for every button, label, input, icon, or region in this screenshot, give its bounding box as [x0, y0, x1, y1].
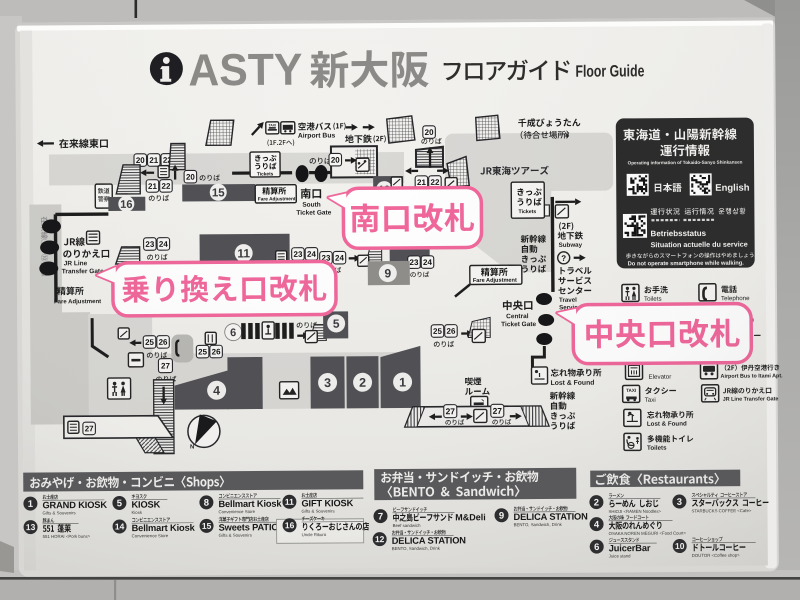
svg-text:6: 6 [594, 542, 599, 553]
svg-text:Beef sandwich: Beef sandwich [393, 523, 422, 528]
svg-text:27: 27 [446, 406, 456, 416]
svg-text:ASTY: ASTY [188, 44, 302, 96]
svg-text:Toilets: Toilets [644, 296, 662, 303]
svg-text:N: N [190, 444, 194, 450]
svg-text:20: 20 [425, 128, 435, 137]
svg-text:27: 27 [85, 424, 95, 433]
svg-text:Fare Adjustment: Fare Adjustment [54, 299, 101, 305]
svg-text:South: South [302, 202, 320, 209]
svg-text:DELICA STATION: DELICA STATION [392, 535, 467, 546]
svg-text:6: 6 [230, 327, 236, 339]
svg-text:Ticket Gate: Ticket Gate [296, 209, 331, 216]
svg-text:Do not operate smartphone whil: Do not operate smartphone while walking. [628, 261, 745, 268]
svg-text:8: 8 [204, 498, 209, 509]
svg-text:15: 15 [202, 521, 212, 531]
svg-text:Sweets PATIO: Sweets PATIO [219, 522, 279, 532]
svg-text:14: 14 [115, 521, 125, 531]
svg-text:26: 26 [446, 327, 456, 336]
svg-text:16: 16 [285, 520, 295, 530]
svg-text:25: 25 [433, 327, 443, 336]
svg-text:27: 27 [493, 406, 503, 416]
svg-text:1: 1 [28, 499, 34, 510]
svg-text:Travel: Travel [559, 297, 577, 304]
svg-text:Bellmart Kiosk: Bellmart Kiosk [132, 523, 196, 533]
svg-text:3: 3 [677, 497, 682, 508]
svg-text:?: ? [561, 254, 566, 263]
svg-text:27: 27 [161, 361, 171, 370]
svg-text:Gifts & Souvenirs: Gifts & Souvenirs [301, 508, 334, 513]
svg-text:Fare Adjustment: Fare Adjustment [473, 278, 517, 284]
svg-text:4: 4 [213, 384, 220, 398]
svg-text:22: 22 [161, 182, 171, 191]
svg-text:Elevator: Elevator [649, 374, 672, 381]
svg-text:9: 9 [384, 266, 391, 280]
svg-text:Airport Bus to Itami Apt.: Airport Bus to Itami Apt. [721, 373, 784, 379]
svg-text:20: 20 [331, 156, 341, 165]
svg-text:21: 21 [417, 178, 427, 187]
svg-text:Operating information of Tokai: Operating information of Tokaido-Sanyo S… [628, 160, 743, 166]
svg-text:23: 23 [410, 258, 420, 267]
svg-text:Gifts & Souvenirs: Gifts & Souvenirs [42, 510, 75, 515]
svg-text:GIFT KIOSK: GIFT KIOSK [301, 498, 353, 508]
svg-text:2: 2 [359, 376, 366, 390]
svg-text:24: 24 [335, 254, 345, 263]
svg-text:12: 12 [375, 534, 385, 544]
svg-text:25: 25 [198, 347, 208, 356]
svg-text:Lost & Found: Lost & Found [551, 380, 595, 387]
svg-text:25: 25 [145, 338, 155, 347]
svg-text:11: 11 [237, 246, 250, 260]
svg-text:Taxi: Taxi [645, 397, 656, 404]
svg-text:TAXI: TAXI [626, 388, 636, 393]
svg-text:11: 11 [285, 497, 294, 507]
svg-text:DOUTOR <Coffee shop>: DOUTOR <Coffee shop> [692, 553, 740, 558]
svg-text:Subway: Subway [559, 242, 583, 249]
svg-text:21: 21 [149, 156, 159, 165]
svg-text:Tickets: Tickets [518, 209, 536, 215]
svg-text:20: 20 [186, 173, 196, 182]
svg-text:26: 26 [212, 347, 222, 356]
svg-text:24: 24 [159, 240, 169, 249]
svg-text:23: 23 [293, 250, 303, 259]
svg-text:English: English [715, 183, 750, 194]
svg-text:23: 23 [145, 240, 155, 249]
svg-text:Convenience Store: Convenience Store [132, 533, 169, 538]
svg-text:DELICA STATION: DELICA STATION [513, 511, 588, 522]
svg-text:1: 1 [399, 375, 406, 389]
svg-text:GRAND KIOSK: GRAND KIOSK [42, 500, 107, 510]
svg-text:5: 5 [117, 498, 123, 509]
svg-text:Juice stand: Juice stand [609, 553, 631, 558]
svg-text:¥: ¥ [565, 131, 570, 140]
svg-text:Telephone: Telephone [721, 295, 750, 302]
svg-text:Airport Bus: Airport Bus [298, 132, 336, 139]
svg-text:Toilets: Toilets [647, 445, 667, 452]
svg-text:Tickets: Tickets [257, 171, 274, 177]
svg-text:4: 4 [594, 519, 600, 530]
svg-text:Bellmart Kiosk: Bellmart Kiosk [218, 499, 282, 509]
svg-text:Ticket Gate: Ticket Gate [501, 321, 536, 328]
svg-text:JR Line: JR Line [64, 260, 88, 267]
svg-text:Uncle Rikuro: Uncle Rikuro [302, 532, 327, 537]
svg-text:Floor Guide: Floor Guide [575, 62, 644, 80]
svg-text:BENTO, Sandwich, Drink: BENTO, Sandwich, Drink [514, 522, 563, 527]
svg-text:KIOSK: KIOSK [131, 499, 160, 509]
svg-text:15: 15 [212, 187, 225, 199]
svg-text:16: 16 [120, 199, 132, 211]
svg-text:21: 21 [148, 182, 158, 191]
svg-text:24: 24 [307, 250, 317, 259]
svg-text:OSAKA NOREN MEGURI <Food Court: OSAKA NOREN MEGURI <Food Court> [609, 531, 687, 537]
svg-text:Gifts & Souvenirs: Gifts & Souvenirs [219, 533, 252, 538]
svg-text:551 HORAI <Pork buns>: 551 HORAI <Pork buns> [43, 534, 91, 539]
svg-text:2: 2 [594, 497, 599, 508]
svg-text:JuicerBar: JuicerBar [609, 543, 651, 553]
svg-text:24: 24 [423, 258, 433, 267]
svg-text:9: 9 [499, 511, 504, 522]
svg-text:M&Deli: M&Deli [455, 512, 486, 522]
svg-text:Fare Adjustment: Fare Adjustment [258, 196, 296, 202]
svg-text:Situation actuelle du service: Situation actuelle du service [651, 240, 748, 250]
svg-text:20: 20 [136, 156, 146, 165]
svg-text:26: 26 [159, 338, 169, 347]
svg-text:SHIOJI <RAMEN Noodles>: SHIOJI <RAMEN Noodles> [608, 509, 661, 514]
svg-text:TAXI: TAXI [269, 123, 277, 127]
svg-text:Central: Central [506, 313, 529, 320]
svg-text:BENTO, Sandwich, Drink: BENTO, Sandwich, Drink [392, 546, 441, 551]
svg-text:JR Line Transfer Gate: JR Line Transfer Gate [723, 396, 779, 402]
svg-text:Convenience Store: Convenience Store [218, 509, 255, 514]
svg-text:3: 3 [324, 376, 331, 390]
svg-text:Kiosk: Kiosk [131, 510, 142, 515]
svg-text:STARBUCKS COFFEE <Cafe>: STARBUCKS COFFEE <Cafe> [691, 508, 751, 513]
svg-text:7: 7 [378, 511, 383, 522]
svg-text:Lost & Found: Lost & Found [647, 420, 687, 427]
svg-text:22: 22 [430, 178, 440, 187]
svg-text:5: 5 [333, 317, 340, 331]
svg-text:13: 13 [26, 522, 36, 532]
svg-text:Betriebsstatus: Betriebsstatus [651, 229, 707, 238]
svg-text:10: 10 [675, 541, 685, 551]
